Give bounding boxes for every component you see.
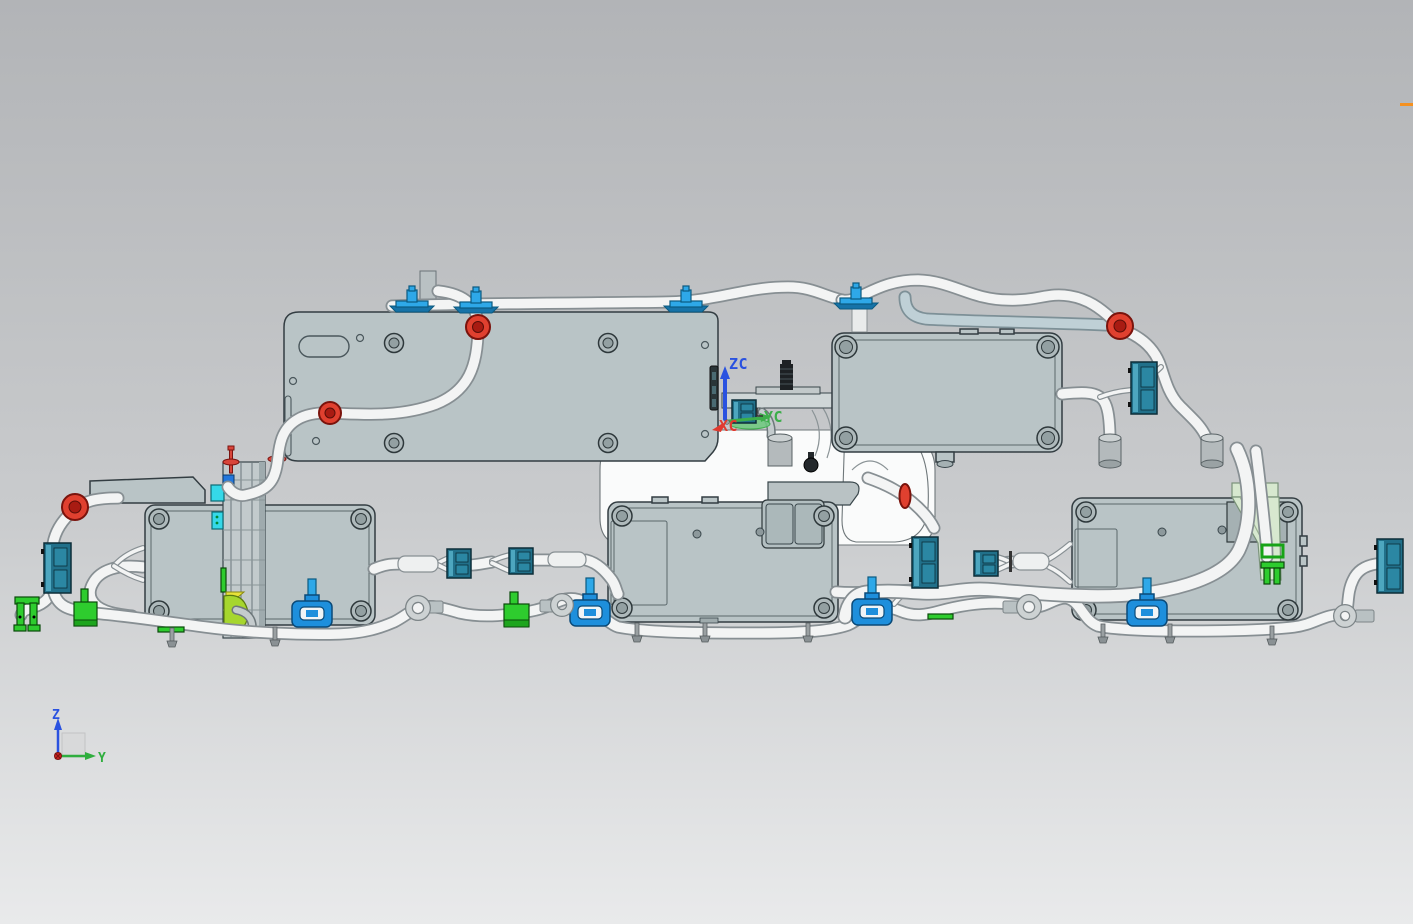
raised-connector-panel[interactable] (762, 500, 824, 548)
connector-teal[interactable] (974, 551, 998, 576)
cyan-connector-2[interactable] (212, 512, 223, 529)
threaded-stud[interactable] (780, 360, 793, 390)
edge-highlight-marker (1400, 103, 1413, 106)
triad-z-label: Z (52, 708, 60, 723)
connector-teal[interactable] (909, 537, 938, 588)
cad-scene: ZC YC XC Z Y (0, 0, 1413, 924)
wcs-yc-label: YC (764, 408, 783, 426)
green-strip (928, 614, 953, 619)
red-grommet[interactable] (466, 315, 490, 339)
triad-cube (62, 733, 85, 757)
green-strip-clip[interactable] (221, 568, 226, 592)
cable-sleeve[interactable] (398, 556, 438, 572)
connector-end-bar (1009, 551, 1012, 572)
triad-y-label: Y (98, 751, 106, 766)
shrink-cylinder[interactable] (1201, 434, 1223, 468)
shrink-cylinder[interactable] (1099, 434, 1121, 468)
red-grommet[interactable] (319, 402, 341, 424)
cable-sleeve[interactable] (1013, 553, 1049, 570)
cad-viewport: ZC YC XC Z Y (0, 0, 1413, 924)
module-bottom-middle[interactable] (608, 497, 838, 623)
connector-teal[interactable] (447, 549, 471, 578)
connector-teal[interactable] (41, 543, 71, 593)
red-grommet[interactable] (62, 494, 88, 520)
cable-end-cylinder[interactable] (768, 434, 792, 466)
triad-origin[interactable] (55, 753, 62, 760)
connector-teal[interactable] (1374, 539, 1403, 593)
wcs-xc-label: XC (719, 417, 738, 435)
wcs-zc-label: ZC (729, 355, 748, 373)
red-grommet[interactable] (1107, 313, 1133, 339)
red-grommet-edge[interactable] (900, 484, 911, 508)
cable-sleeve[interactable] (548, 552, 586, 567)
panel-edge-connector[interactable] (710, 366, 718, 410)
connector-teal[interactable] (1128, 362, 1157, 414)
connector-teal[interactable] (509, 548, 533, 574)
